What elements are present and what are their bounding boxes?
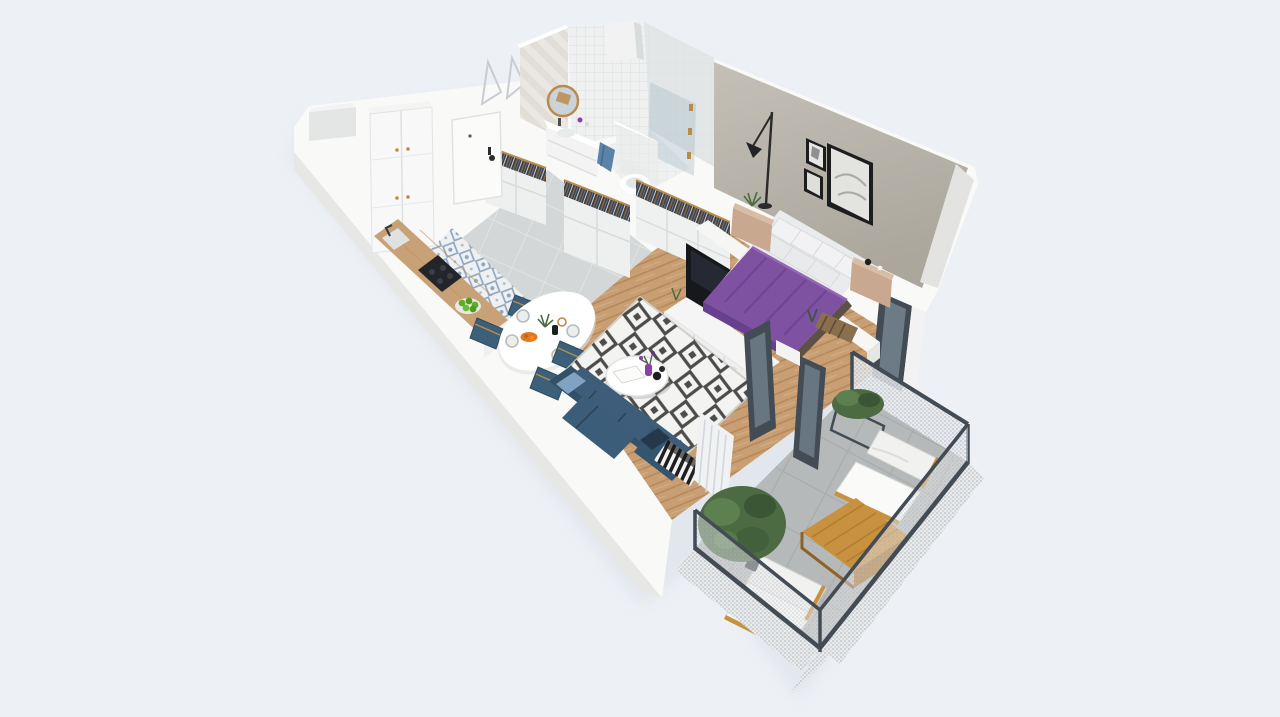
floorplan-svg [0, 0, 1280, 717]
duct-pillar [604, 22, 644, 61]
black-pot [653, 372, 661, 380]
entry-door [452, 112, 502, 204]
round-mirror [548, 86, 578, 116]
floorplan-render [0, 0, 1280, 717]
wall-niche [309, 103, 356, 141]
purple-vase [645, 364, 652, 376]
